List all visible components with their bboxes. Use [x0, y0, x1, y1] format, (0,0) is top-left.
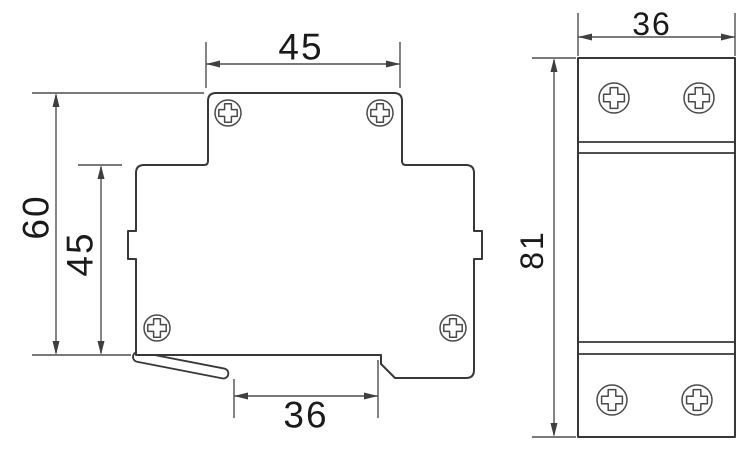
screw-icon	[367, 100, 393, 126]
dim-label-top-width: 45	[278, 29, 323, 66]
front-view	[32, 42, 482, 418]
screw-icon	[144, 315, 170, 341]
screw-icon	[215, 100, 241, 126]
front-view-outline	[128, 93, 482, 378]
dim-label-side-height: 81	[516, 230, 548, 270]
dim-label-body-height: 45	[62, 231, 99, 276]
screw-icon	[440, 315, 466, 341]
drawing-canvas	[0, 0, 750, 449]
screw-icon	[684, 83, 714, 113]
dim-label-side-width: 36	[632, 8, 672, 40]
dim-label-bottom-recess: 36	[283, 397, 328, 434]
side-view	[532, 13, 735, 437]
screw-icon	[597, 385, 627, 415]
dim-label-overall-height: 60	[18, 194, 55, 239]
side-view-outline	[578, 58, 735, 437]
screw-icon	[682, 385, 712, 415]
screw-icon	[599, 83, 629, 113]
technical-drawing: 45 60 45 36 36 81	[0, 0, 750, 449]
